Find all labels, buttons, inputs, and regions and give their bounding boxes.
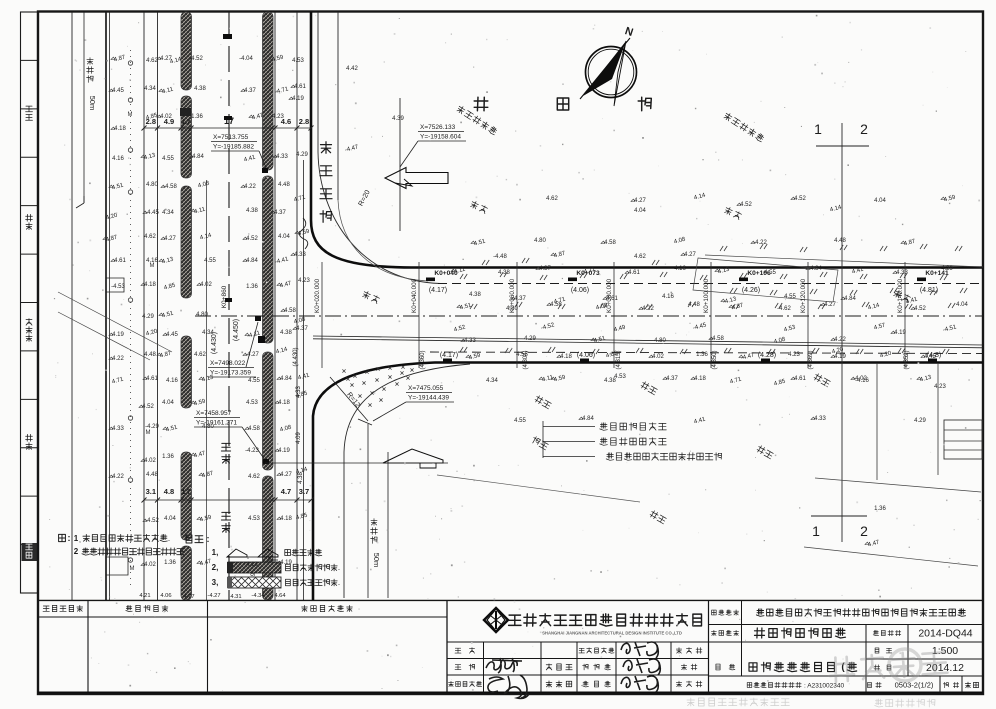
svg-text:4.62: 4.62 [194,352,206,358]
svg-text:4.27: 4.27 [280,472,292,478]
svg-text:4.18: 4.18 [694,376,706,382]
svg-text:4.33: 4.33 [464,338,476,344]
svg-text:,: , [79,537,81,544]
svg-text:1.7: 1.7 [182,120,191,126]
svg-text:4.42: 4.42 [346,66,358,72]
svg-text:4.02: 4.02 [160,114,172,120]
svg-text:4.52: 4.52 [914,306,926,312]
svg-text:4.22: 4.22 [244,184,256,190]
svg-text:4.04: 4.04 [278,234,290,240]
svg-text:4.52: 4.52 [794,196,806,202]
svg-text:4.23: 4.23 [298,278,310,284]
svg-text::: : [207,534,210,544]
svg-text:4.62: 4.62 [248,474,260,480]
svg-text:4.22: 4.22 [834,337,846,343]
svg-text:4.27: 4.27 [634,198,646,204]
svg-text:-4.53: -4.53 [111,284,125,290]
svg-text:M: M [128,112,133,118]
svg-text:4.84: 4.84 [246,258,258,264]
svg-text:4.62: 4.62 [546,196,558,202]
svg-text:K0+020.000: K0+020.000 [314,278,321,313]
svg-text:Y=-19173.359: Y=-19173.359 [210,370,251,377]
svg-text:4.33: 4.33 [294,252,306,258]
svg-text:4.61: 4.61 [146,376,158,382]
svg-text:4.38: 4.38 [280,330,292,336]
svg-text:1,: 1, [212,548,219,557]
svg-text:4.53: 4.53 [614,374,626,380]
svg-text:4.84: 4.84 [582,416,594,422]
svg-text:X=7475.055: X=7475.055 [408,385,444,392]
svg-text:.: . [338,563,340,572]
svg-text:4.37: 4.37 [274,210,286,216]
svg-text:(4.17): (4.17) [440,352,458,359]
svg-text:4.18: 4.18 [560,354,572,360]
svg-text:4.18: 4.18 [114,126,126,132]
svg-text:-4.22: -4.22 [753,240,767,246]
svg-text:4.34: 4.34 [486,378,498,384]
svg-text:3.1: 3.1 [146,487,156,496]
svg-text:4.04: 4.04 [162,400,174,406]
svg-text:4.34: 4.34 [144,86,156,92]
svg-text:4.48: 4.48 [278,182,290,188]
svg-text:4.02: 4.02 [144,562,156,568]
svg-text:4.37: 4.37 [296,326,308,332]
svg-text:4.52: 4.52 [740,202,752,208]
svg-text:4.33: 4.33 [896,270,908,276]
svg-text:4.45: 4.45 [924,354,936,360]
svg-text:1.36: 1.36 [191,114,203,120]
svg-text:4.19: 4.19 [834,354,846,360]
svg-text:4.80: 4.80 [146,182,158,188]
svg-text:4.27: 4.27 [684,252,696,258]
svg-text:4.58: 4.58 [248,426,260,432]
svg-text:4.33: 4.33 [814,416,826,422]
svg-text:4.61: 4.61 [628,270,640,276]
svg-text:-4.58: -4.58 [163,184,177,190]
svg-text:2,: 2, [212,563,219,572]
svg-text:4.37: 4.37 [539,266,551,272]
svg-text:(4.430): (4.430) [293,347,299,366]
svg-text:4.33: 4.33 [276,154,288,160]
svg-text:1: 1 [812,523,820,539]
svg-text:4.61: 4.61 [294,84,306,90]
svg-text:1: 1 [74,534,79,543]
svg-text:4.61: 4.61 [114,258,126,264]
svg-text:-4.16: -4.16 [855,378,869,384]
svg-text:4.27: 4.27 [164,236,176,242]
svg-text:4.62: 4.62 [146,58,158,64]
svg-text:4.53: 4.53 [248,516,260,522]
svg-text:(4.369): (4.369) [808,350,814,369]
svg-text:4.38: 4.38 [194,86,206,92]
svg-text:(4.17): (4.17) [429,287,447,294]
svg-text:-4.23: -4.23 [245,448,259,454]
svg-text:4.53: 4.53 [246,400,258,406]
svg-text:4.61: 4.61 [606,296,618,302]
svg-text:4.52: 4.52 [246,236,258,242]
svg-text:4.80: 4.80 [196,312,208,318]
svg-text:1.36: 1.36 [162,454,174,460]
svg-text:2014-DQ44: 2014-DQ44 [918,628,972,640]
svg-text:(4.28): (4.28) [758,352,776,359]
svg-text:4.53: 4.53 [292,58,304,64]
svg-text:4.23: 4.23 [934,384,946,390]
svg-text:1.36: 1.36 [696,352,708,358]
svg-text:-4.48: -4.48 [493,254,507,260]
svg-text:1.36: 1.36 [874,506,886,512]
svg-text:4.38: 4.38 [469,292,481,298]
svg-text:Y=-19158.604: Y=-19158.604 [420,134,461,141]
svg-text:4.34: 4.34 [162,210,174,216]
svg-text:4.45: 4.45 [166,332,178,338]
svg-text:(4.450): (4.450) [233,319,240,341]
svg-text:(4.350): (4.350) [712,350,718,369]
svg-text:-4.04: -4.04 [239,56,253,62]
svg-text:4.22: 4.22 [112,474,124,480]
svg-text:4.19: 4.19 [894,330,906,336]
svg-text:4.37: 4.37 [666,376,678,382]
svg-text:4.64: 4.64 [274,593,286,599]
svg-text:-4.84: -4.84 [808,266,822,272]
svg-text:4.80: 4.80 [506,306,518,312]
svg-text:4.02: 4.02 [144,458,156,464]
svg-text:1.7: 1.7 [182,490,191,496]
svg-text:(4.360): (4.360) [420,350,426,369]
svg-text:4.62: 4.62 [634,254,646,260]
svg-text:4.58: 4.58 [712,336,724,342]
svg-text:3,: 3, [212,578,219,587]
svg-text:4.80: 4.80 [654,338,666,344]
svg-text:2: 2 [74,547,79,556]
svg-text:4.7: 4.7 [281,487,291,496]
svg-text:4.45: 4.45 [112,88,124,94]
svg-text:4.38: 4.38 [246,208,258,214]
svg-text:4.31: 4.31 [230,594,241,600]
svg-text:2: 2 [860,121,868,137]
svg-text:K0+100.000: K0+100.000 [703,278,710,313]
svg-text:4.53: 4.53 [516,352,528,358]
svg-text:4.48: 4.48 [146,472,158,478]
svg-text:4.48: 4.48 [144,352,156,358]
svg-text:4.19: 4.19 [112,332,124,338]
svg-text:4.52: 4.52 [191,56,203,62]
svg-text:4.21: 4.21 [139,593,150,599]
svg-text:4.37: 4.37 [244,88,256,94]
svg-text:4.48: 4.48 [834,238,846,244]
svg-text:4.84: 4.84 [280,376,292,382]
svg-text:-4.27: -4.27 [245,352,259,358]
svg-text:4.39: 4.39 [392,116,404,122]
svg-text:4.02: 4.02 [652,354,664,360]
svg-text::: : [68,533,71,543]
svg-text:50m: 50m [88,96,97,111]
svg-text:4.04: 4.04 [164,516,176,522]
svg-text:4.84: 4.84 [192,154,204,160]
svg-text:50m: 50m [372,553,381,568]
svg-text:K0+120.000: K0+120.000 [800,278,807,313]
svg-text:4.34: 4.34 [202,330,214,336]
svg-text:Y=-19185.882: Y=-19185.882 [213,144,254,151]
svg-text:4.55: 4.55 [248,378,260,384]
svg-text:(4.06): (4.06) [571,287,589,294]
svg-text:-4.45: -4.45 [145,210,159,216]
svg-text:4.16: 4.16 [674,266,686,272]
svg-text:4.80: 4.80 [534,238,546,244]
svg-text:Y=-19144.439: Y=-19144.439 [408,395,449,402]
svg-text:4.38: 4.38 [604,378,616,384]
svg-text:4.38: 4.38 [498,270,510,276]
svg-text:4.29: 4.29 [296,152,308,158]
svg-text:4.22: 4.22 [642,306,654,312]
svg-text:K0+040.000: K0+040.000 [411,278,418,313]
svg-text:X=7526.133: X=7526.133 [420,124,456,131]
svg-text:.: . [168,534,170,543]
svg-text:4.37: 4.37 [514,296,526,302]
svg-text:M: M [130,566,135,572]
svg-text:4.23: 4.23 [246,562,258,568]
svg-text:4.18: 4.18 [278,400,290,406]
svg-text:4.62: 4.62 [144,234,156,240]
svg-text:4.55: 4.55 [162,156,174,162]
svg-text:M: M [146,430,151,436]
svg-text:1: 1 [814,121,822,137]
svg-text:4.55: 4.55 [514,418,526,424]
svg-text:4.16: 4.16 [166,378,178,384]
svg-text:4.55: 4.55 [204,258,216,264]
svg-text:4.77: 4.77 [183,594,194,600]
svg-text:-4.34: -4.34 [251,593,265,599]
svg-text:4.84: 4.84 [844,296,856,302]
svg-text:4.58: 4.58 [604,240,616,246]
svg-text:M: M [150,263,155,269]
svg-text:4.04: 4.04 [634,208,646,214]
svg-text:4.29: 4.29 [941,266,953,272]
svg-text:.: . [338,578,340,587]
svg-text:4.29: 4.29 [524,336,536,342]
svg-text:4.58: 4.58 [284,308,296,314]
svg-text:4.22: 4.22 [112,356,124,362]
svg-text:2: 2 [860,523,868,539]
svg-text:X=7458.957: X=7458.957 [196,410,232,417]
svg-text:4.18: 4.18 [280,516,292,522]
svg-text:4.80: 4.80 [202,424,214,430]
svg-text:4.19: 4.19 [280,560,292,566]
svg-text:4.16: 4.16 [662,294,674,300]
svg-text:4.52: 4.52 [142,404,154,410]
svg-text:1.36: 1.36 [246,284,258,290]
svg-text:SHANGHAI JIANGNAN ARCHITECTURA: SHANGHAI JIANGNAN ARCHITECTURAL DESIGN I… [542,631,682,636]
svg-text:3.7: 3.7 [299,487,309,496]
svg-text:4.04: 4.04 [874,198,886,204]
svg-text:4.09: 4.09 [296,432,302,444]
svg-text:(4.352): (4.352) [904,350,910,369]
svg-text:4.06: 4.06 [160,593,171,599]
svg-text:4.02: 4.02 [200,282,212,288]
svg-text:-4.52: -4.52 [145,518,159,524]
svg-text:4.19: 4.19 [292,96,304,102]
svg-text:4.55: 4.55 [784,294,796,300]
svg-text:4.19: 4.19 [278,448,290,454]
svg-text:4.29: 4.29 [914,418,926,424]
svg-text:4.23: 4.23 [272,114,284,120]
svg-text:X=7513.755: X=7513.755 [213,134,249,141]
svg-text:4.04: 4.04 [956,302,968,308]
svg-text:4.55: 4.55 [764,270,776,276]
svg-text:4.33: 4.33 [112,426,124,432]
svg-text:4.18: 4.18 [144,282,156,288]
svg-text:4.16: 4.16 [112,156,124,162]
svg-text:X=7498.022: X=7498.022 [210,360,246,367]
svg-text:-4.27: -4.27 [207,593,220,599]
svg-text:2.8: 2.8 [299,117,309,126]
svg-text:4.8: 4.8 [164,487,174,496]
svg-text:4.61: 4.61 [794,376,806,382]
svg-text:4.23: 4.23 [788,352,800,358]
svg-text:1.36: 1.36 [164,560,176,566]
svg-text:K0+860: K0+860 [221,285,228,308]
svg-text:4.29: 4.29 [142,314,154,320]
svg-text:4.27: 4.27 [824,302,836,308]
svg-text:(4.26): (4.26) [742,287,760,294]
svg-text:: A231002340: : A231002340 [804,683,845,690]
